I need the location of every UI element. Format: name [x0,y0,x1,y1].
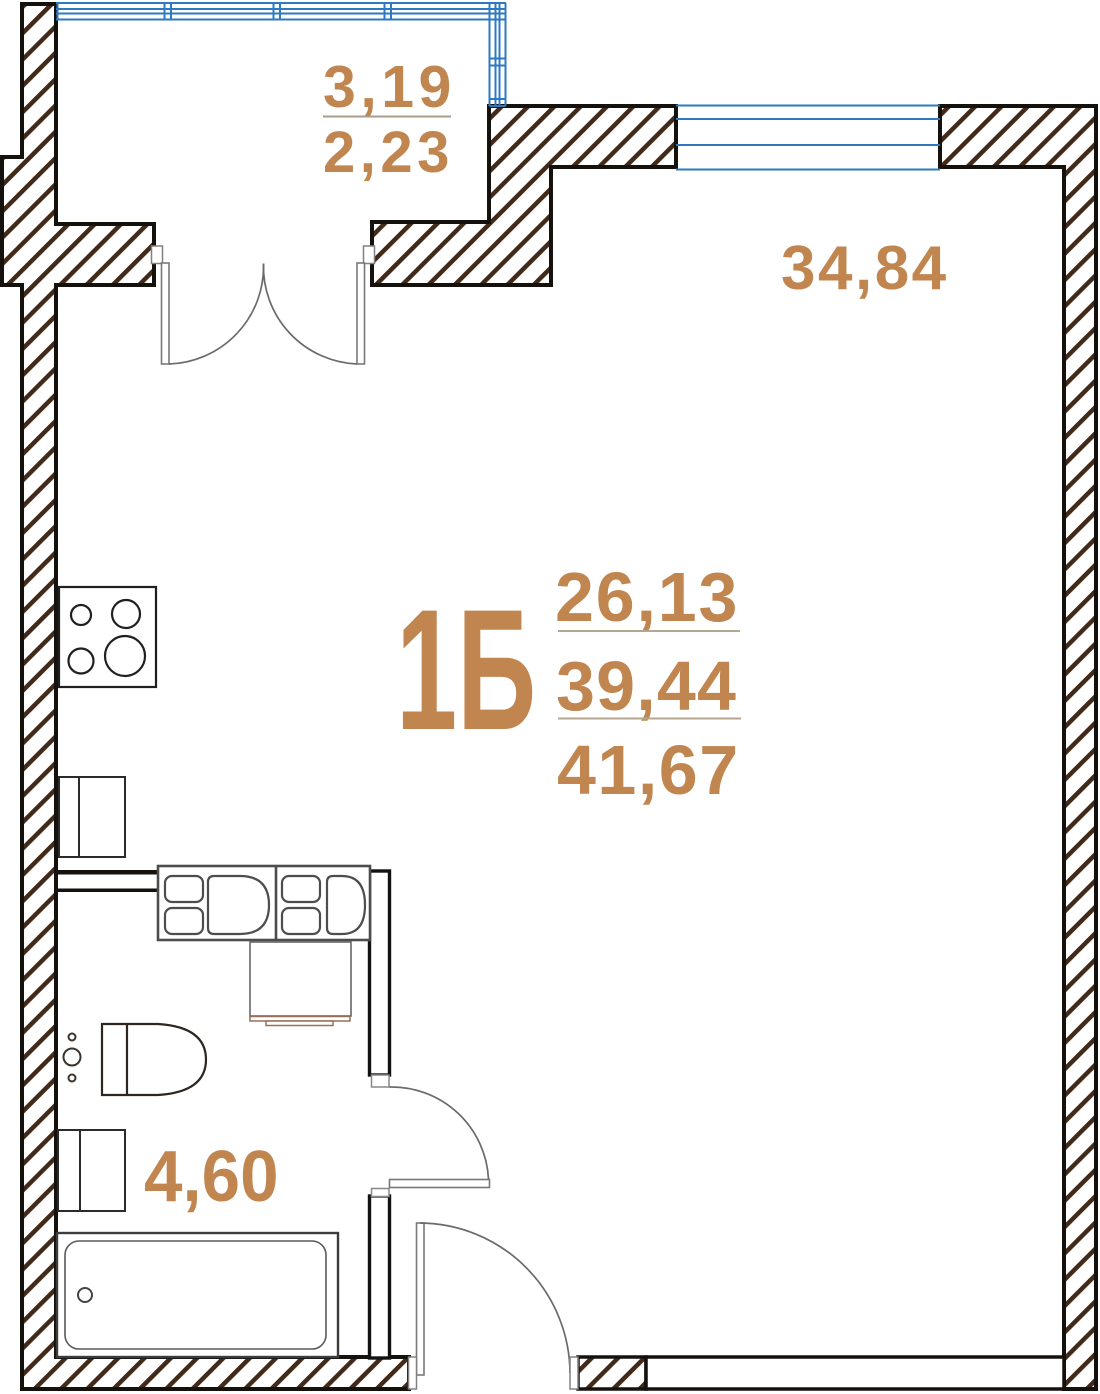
svg-text:41,67: 41,67 [557,731,740,809]
svg-text:3,19: 3,19 [323,54,456,120]
svg-text:34,84: 34,84 [781,234,949,303]
svg-text:1Б: 1Б [396,573,536,766]
svg-text:2,23: 2,23 [323,120,454,185]
svg-text:39,44: 39,44 [556,647,737,725]
svg-text:26,13: 26,13 [555,558,739,636]
svg-text:4,60: 4,60 [144,1136,279,1217]
